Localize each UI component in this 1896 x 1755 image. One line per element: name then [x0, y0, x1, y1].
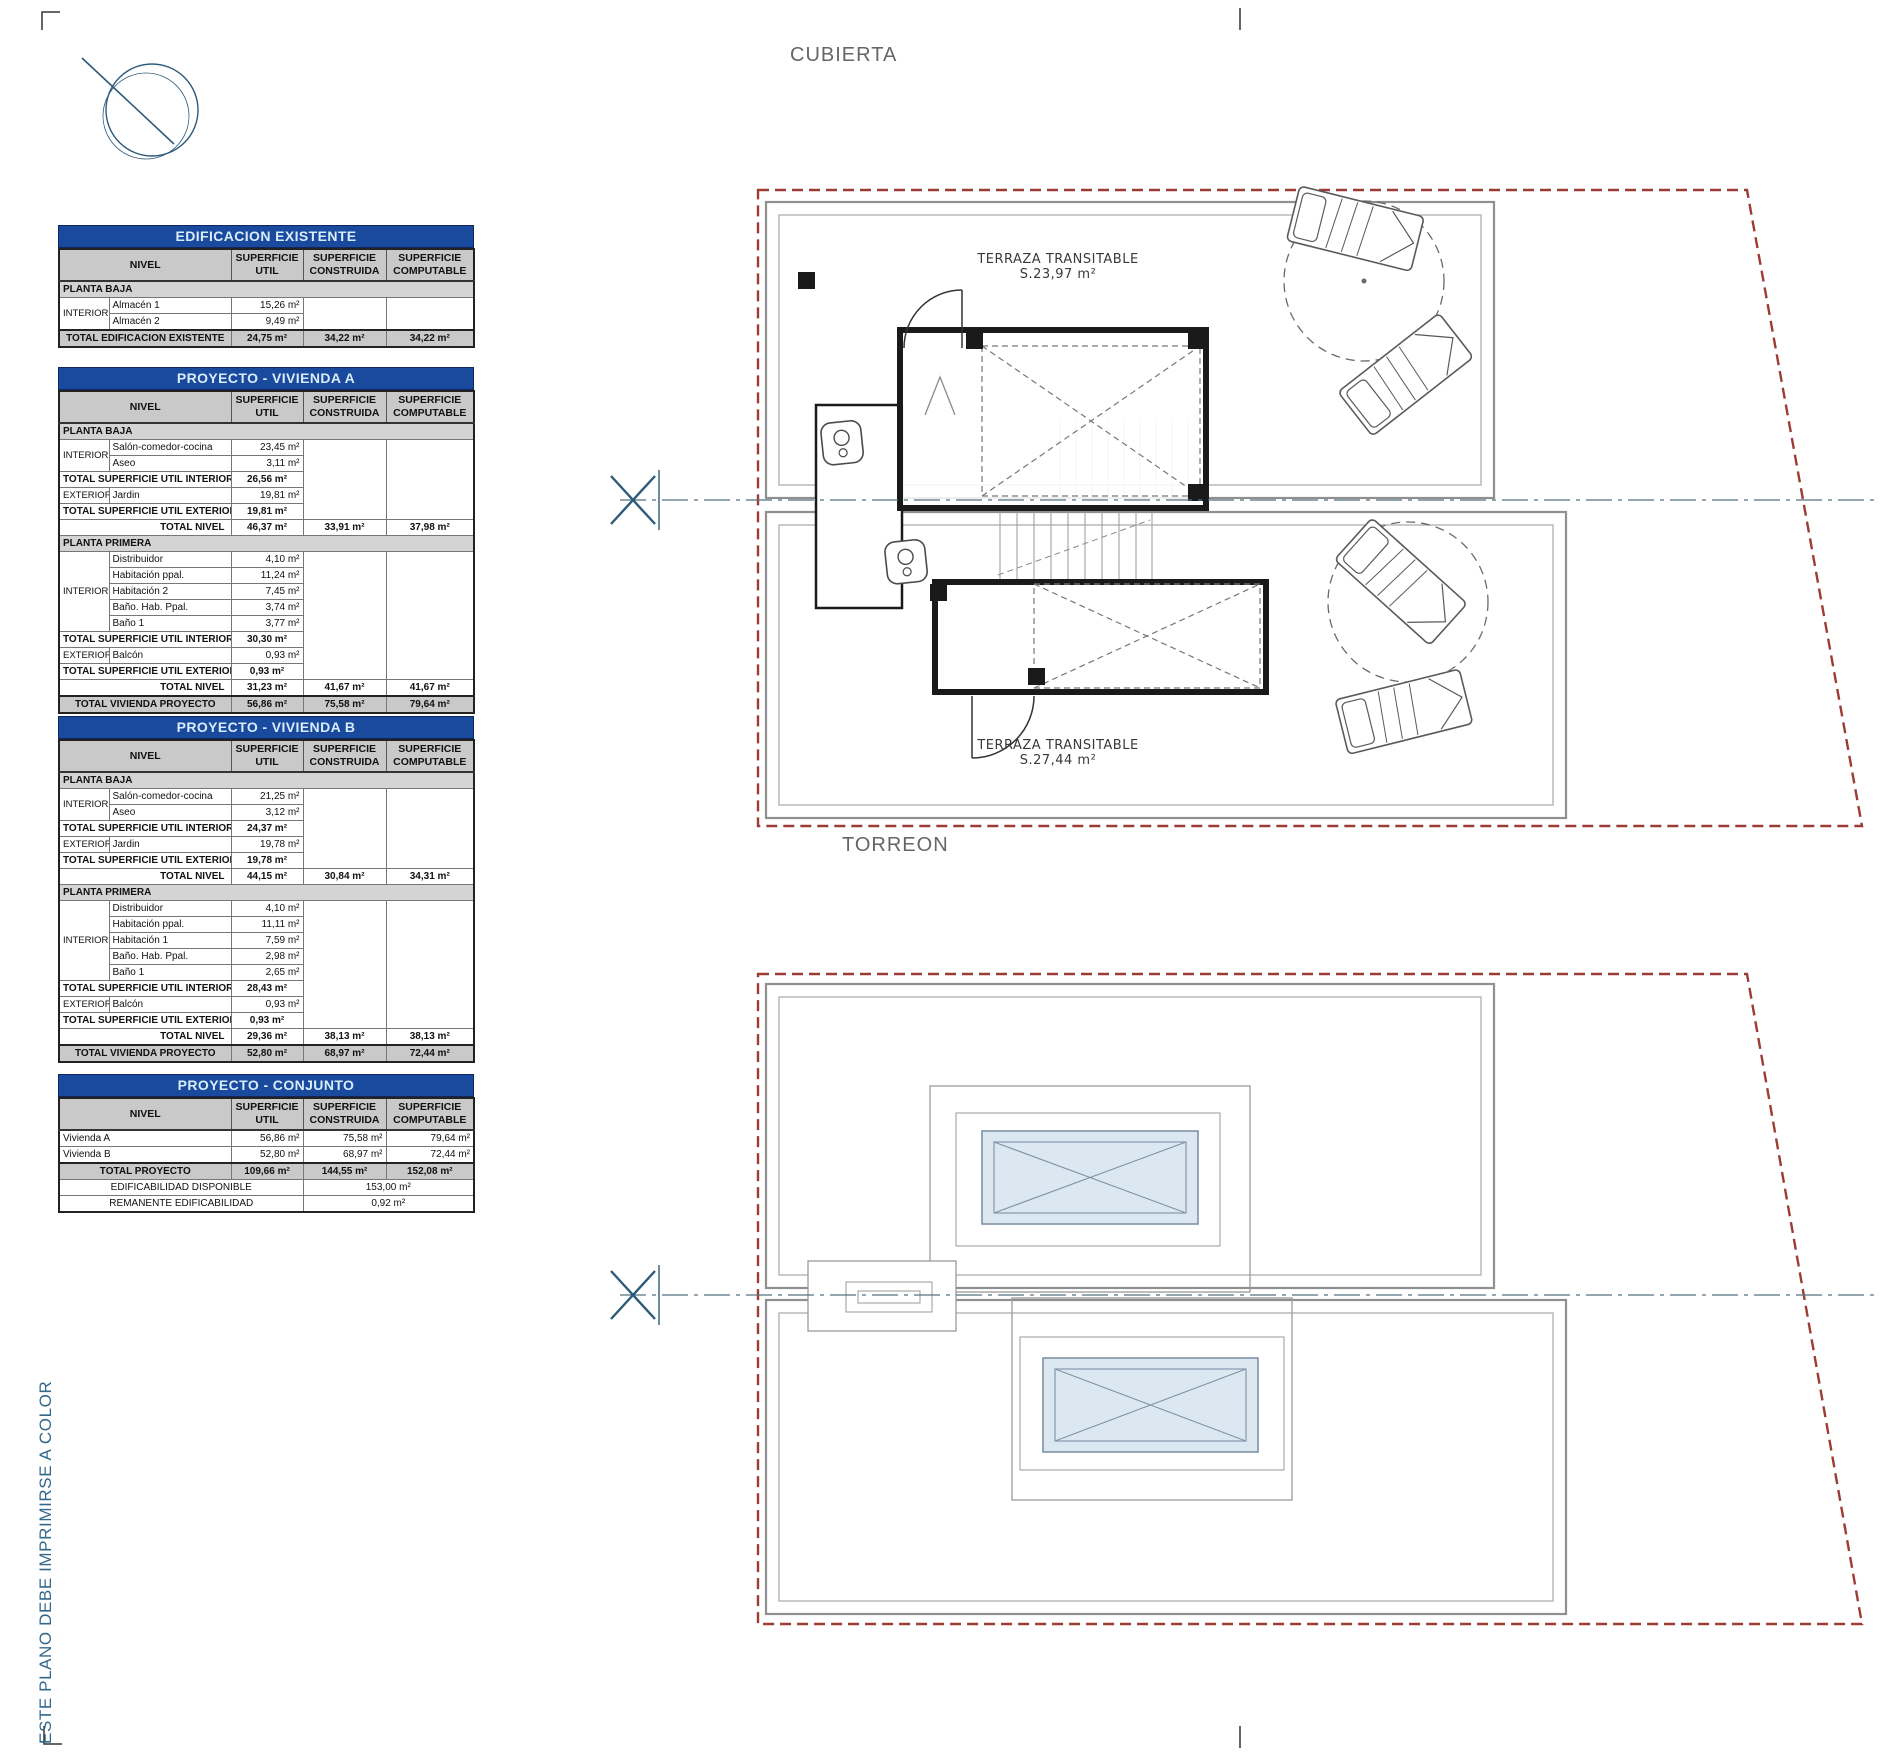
table-cell: TOTAL SUPERFICIE UTIL INTERIOR — [59, 632, 231, 648]
terraza-label-line: S.27,44 m² — [903, 753, 1213, 768]
table-cell: 0,92 m² — [303, 1196, 474, 1213]
table-cell: Aseo — [109, 456, 231, 472]
table-cell: 3,12 m² — [231, 805, 303, 821]
table-cell: 34,22 m² — [386, 330, 474, 347]
table-cell — [386, 789, 474, 869]
table-cell: EXTERIOR — [59, 648, 109, 664]
table-cell: Balcón — [109, 997, 231, 1013]
table-title: PROYECTO - CONJUNTO — [58, 1074, 474, 1097]
table-cell: Distribuidor — [109, 901, 231, 917]
column-header: SUPERFICIE COMPUTABLE — [386, 391, 474, 423]
table-cell: Vivienda A — [59, 1130, 231, 1147]
table-cell: 0,93 m² — [231, 1013, 303, 1029]
terraza-label-line: S.23,97 m² — [903, 267, 1213, 282]
table-cell: Almacén 2 — [109, 314, 231, 331]
table-cell: TOTAL NIVEL — [59, 1029, 231, 1046]
stair-treads — [1000, 512, 1152, 580]
terraza-label-a: TERRAZA TRANSITABLE S.23,97 m² — [903, 252, 1213, 282]
table-cell: 19,81 m² — [231, 504, 303, 520]
table-cell: TOTAL SUPERFICIE UTIL EXTERIOR — [59, 664, 231, 680]
column-header: SUPERFICIE COMPUTABLE — [386, 740, 474, 772]
table-cell: Vivienda B — [59, 1147, 231, 1164]
table-cell: PLANTA BAJA — [59, 772, 474, 789]
table-cell: PLANTA BAJA — [59, 281, 474, 298]
table-cell: TOTAL VIVIENDA PROYECTO — [59, 1045, 231, 1062]
plan-title-cubierta: CUBIERTA — [790, 44, 897, 67]
roof-attachment — [808, 1261, 956, 1331]
table-cell: 68,97 m² — [303, 1045, 386, 1062]
column-header: NIVEL — [59, 1098, 231, 1130]
toilet-icon — [884, 539, 928, 585]
table-cell: 11,24 m² — [231, 568, 303, 584]
sun-lounger-icon — [1338, 313, 1473, 436]
table-cell — [303, 901, 386, 1029]
table-cell: TOTAL EDIFICACION EXISTENTE — [59, 330, 231, 347]
table-cell: Baño 1 — [109, 965, 231, 981]
table-cell: 0,93 m² — [231, 997, 303, 1013]
table-cell: 21,25 m² — [231, 789, 303, 805]
table-title: PROYECTO - VIVIENDA A — [58, 367, 474, 390]
table-cell: 30,30 m² — [231, 632, 303, 648]
table-cell: 38,13 m² — [303, 1029, 386, 1046]
sun-lounger-icon — [1286, 186, 1424, 271]
terraza-label-b: TERRAZA TRANSITABLE S.27,44 m² — [903, 738, 1213, 768]
table-cell: 52,80 m² — [231, 1045, 303, 1062]
table-cell: 0,93 m² — [231, 664, 303, 680]
table-proyecto-vivienda-b: PROYECTO - VIVIENDA B NIVELSUPERFICIE UT… — [58, 716, 474, 1063]
torreon-upper-walls — [900, 330, 1206, 508]
area-table: NIVELSUPERFICIE UTILSUPERFICIE CONSTRUID… — [58, 739, 475, 1063]
table-cell: 4,10 m² — [231, 552, 303, 568]
column-header: SUPERFICIE CONSTRUIDA — [303, 1098, 386, 1130]
table-cell: Balcón — [109, 648, 231, 664]
roof-plan-torreon — [611, 186, 1875, 826]
table-cell: Baño 1 — [109, 616, 231, 632]
table-cell: Salón-comedor-cocina — [109, 789, 231, 805]
table-cell: 79,64 m² — [386, 1130, 474, 1147]
table-cell: TOTAL SUPERFICIE UTIL EXTERIOR — [59, 1013, 231, 1029]
sun-lounger-icon — [1335, 669, 1473, 754]
column-header: SUPERFICIE CONSTRUIDA — [303, 740, 386, 772]
table-cell — [303, 440, 386, 520]
table-cell: TOTAL SUPERFICIE UTIL EXTERIOR — [59, 853, 231, 869]
table-cell: Baño. Hab. Ppal. — [109, 600, 231, 616]
table-cell: TOTAL SUPERFICIE UTIL INTERIOR — [59, 981, 231, 997]
drawing-sheet: CUBIERTA TORREON TERRAZA TRANSITABLE S.2… — [0, 0, 1896, 1755]
table-cell: 52,80 m² — [231, 1147, 303, 1164]
table-cell: Aseo — [109, 805, 231, 821]
table-cell: TOTAL PROYECTO — [59, 1163, 231, 1180]
area-table: NIVELSUPERFICIE UTILSUPERFICIE CONSTRUID… — [58, 390, 475, 714]
table-cell: TOTAL SUPERFICIE UTIL INTERIOR — [59, 821, 231, 837]
column-header: SUPERFICIE UTIL — [231, 249, 303, 281]
table-cell: 68,97 m² — [303, 1147, 386, 1164]
table-cell: 144,55 m² — [303, 1163, 386, 1180]
table-cell: 7,59 m² — [231, 933, 303, 949]
table-cell: INTERIOR — [59, 552, 109, 632]
table-cell — [303, 552, 386, 680]
table-cell: Habitación ppal. — [109, 568, 231, 584]
table-cell: Baño. Hab. Ppal. — [109, 949, 231, 965]
table-cell: 24,37 m² — [231, 821, 303, 837]
table-cell: 2,98 m² — [231, 949, 303, 965]
column-header: SUPERFICIE UTIL — [231, 740, 303, 772]
table-cell: INTERIOR — [59, 789, 109, 821]
table-cell: EXTERIOR — [59, 837, 109, 853]
table-cell — [386, 298, 474, 331]
table-cell: EXTERIOR — [59, 488, 109, 504]
table-cell: 26,56 m² — [231, 472, 303, 488]
table-cell: 152,08 m² — [386, 1163, 474, 1180]
table-cell: INTERIOR — [59, 901, 109, 981]
table-cell: 24,75 m² — [231, 330, 303, 347]
table-cell: 19,81 m² — [231, 488, 303, 504]
table-cell: 4,10 m² — [231, 901, 303, 917]
table-cell: 56,86 m² — [231, 1130, 303, 1147]
table-cell — [386, 440, 474, 520]
table-cell: 41,67 m² — [386, 680, 474, 697]
toilet-icon — [820, 420, 864, 466]
table-cell: 29,36 m² — [231, 1029, 303, 1046]
plan-title-torreon: TORREON — [842, 834, 949, 857]
terraza-label-line: TERRAZA TRANSITABLE — [903, 252, 1213, 267]
table-cell: 34,22 m² — [303, 330, 386, 347]
table-cell: REMANENTE EDIFICABILIDAD — [59, 1196, 303, 1213]
table-cell: 44,15 m² — [231, 869, 303, 885]
table-cell: 2,65 m² — [231, 965, 303, 981]
table-cell: Jardin — [109, 837, 231, 853]
table-cell: 109,66 m² — [231, 1163, 303, 1180]
table-cell: Salón-comedor-cocina — [109, 440, 231, 456]
table-cell: 9,49 m² — [231, 314, 303, 331]
table-cell: 30,84 m² — [303, 869, 386, 885]
table-cell — [386, 901, 474, 1029]
table-cell: 31,23 m² — [231, 680, 303, 697]
table-cell: TOTAL VIVIENDA PROYECTO — [59, 696, 231, 713]
table-cell: 0,93 m² — [231, 648, 303, 664]
table-title: EDIFICACION EXISTENTE — [58, 225, 474, 248]
north-arrow-icon — [82, 58, 198, 159]
corner-mark-icon — [42, 12, 60, 30]
table-cell — [303, 298, 386, 331]
table-cell: 38,13 m² — [386, 1029, 474, 1046]
column-header: SUPERFICIE CONSTRUIDA — [303, 391, 386, 423]
table-cell: 23,45 m² — [231, 440, 303, 456]
table-cell: Habitación ppal. — [109, 917, 231, 933]
table-edificacion-existente: EDIFICACION EXISTENTE NIVELSUPERFICIE UT… — [58, 225, 474, 348]
table-cell — [386, 552, 474, 680]
table-cell: 72,44 m² — [386, 1147, 474, 1164]
table-cell: Habitación 2 — [109, 584, 231, 600]
terraza-label-line: TERRAZA TRANSITABLE — [903, 738, 1213, 753]
sun-lounger-icon — [1335, 518, 1468, 645]
table-cell — [303, 789, 386, 869]
table-cell: Almacén 1 — [109, 298, 231, 314]
table-cell: 19,78 m² — [231, 837, 303, 853]
column-header: NIVEL — [59, 249, 231, 281]
table-cell: INTERIOR — [59, 298, 109, 331]
table-cell: 15,26 m² — [231, 298, 303, 314]
table-cell: 75,58 m² — [303, 1130, 386, 1147]
torreon-lower-walls — [935, 582, 1266, 692]
table-cell: 7,45 m² — [231, 584, 303, 600]
table-cell: 79,64 m² — [386, 696, 474, 713]
column-header: SUPERFICIE UTIL — [231, 1098, 303, 1130]
area-table: NIVELSUPERFICIE UTILSUPERFICIE CONSTRUID… — [58, 1097, 475, 1213]
table-cell: Jardin — [109, 488, 231, 504]
column-header: NIVEL — [59, 391, 231, 423]
column-header: SUPERFICIE COMPUTABLE — [386, 1098, 474, 1130]
table-cell: 11,11 m² — [231, 917, 303, 933]
table-cell: 41,67 m² — [303, 680, 386, 697]
table-cell: 19,78 m² — [231, 853, 303, 869]
column-header: SUPERFICIE COMPUTABLE — [386, 249, 474, 281]
table-cell: 34,31 m² — [386, 869, 474, 885]
table-cell: PLANTA PRIMERA — [59, 536, 474, 552]
table-cell: TOTAL NIVEL — [59, 520, 231, 536]
table-cell: 3,77 m² — [231, 616, 303, 632]
table-cell: 37,98 m² — [386, 520, 474, 536]
table-cell: 3,11 m² — [231, 456, 303, 472]
table-cell: 75,58 m² — [303, 696, 386, 713]
table-cell: 72,44 m² — [386, 1045, 474, 1062]
table-proyecto-conjunto: PROYECTO - CONJUNTO NIVELSUPERFICIE UTIL… — [58, 1074, 474, 1213]
area-table: NIVELSUPERFICIE UTILSUPERFICIE CONSTRUID… — [58, 248, 475, 348]
table-cell: EXTERIOR — [59, 997, 109, 1013]
table-proyecto-vivienda-a: PROYECTO - VIVIENDA A NIVELSUPERFICIE UT… — [58, 367, 474, 714]
table-cell: Habitación 1 — [109, 933, 231, 949]
table-cell: 56,86 m² — [231, 696, 303, 713]
table-cell: 46,37 m² — [231, 520, 303, 536]
column-header: SUPERFICIE CONSTRUIDA — [303, 249, 386, 281]
print-color-note: ESTE PLANO DEBE IMPRIMIRSE A COLOR — [36, 1381, 56, 1744]
table-cell: Distribuidor — [109, 552, 231, 568]
table-cell: EDIFICABILIDAD DISPONIBLE — [59, 1180, 303, 1196]
table-cell: INTERIOR — [59, 440, 109, 472]
table-cell: PLANTA PRIMERA — [59, 885, 474, 901]
skylight — [1043, 1358, 1258, 1452]
table-cell: 153,00 m² — [303, 1180, 474, 1196]
column-header: NIVEL — [59, 740, 231, 772]
table-cell: TOTAL SUPERFICIE UTIL EXTERIOR — [59, 504, 231, 520]
roof-plan-lower — [611, 974, 1875, 1624]
table-cell: PLANTA BAJA — [59, 423, 474, 440]
column-header: SUPERFICIE UTIL — [231, 391, 303, 423]
table-cell: 3,74 m² — [231, 600, 303, 616]
table-cell: TOTAL NIVEL — [59, 869, 231, 885]
table-title: PROYECTO - VIVIENDA B — [58, 716, 474, 739]
table-cell: 33,91 m² — [303, 520, 386, 536]
table-cell: 28,43 m² — [231, 981, 303, 997]
table-cell: TOTAL NIVEL — [59, 680, 231, 697]
table-cell: TOTAL SUPERFICIE UTIL INTERIOR — [59, 472, 231, 488]
skylight — [982, 1131, 1198, 1224]
